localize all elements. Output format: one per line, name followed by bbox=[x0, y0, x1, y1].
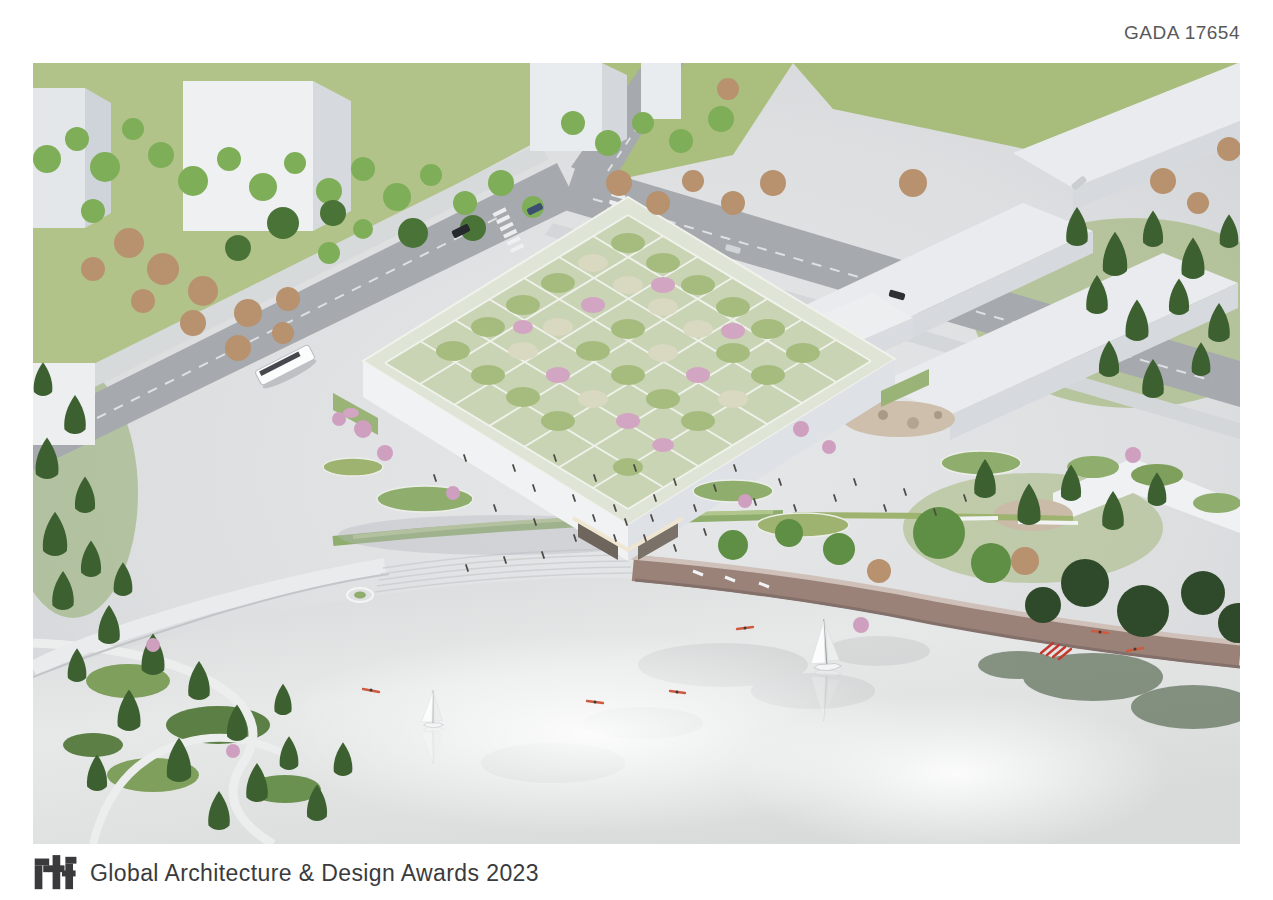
rtf-logo bbox=[33, 852, 79, 894]
award-title: Global Architecture & Design Awards 2023 bbox=[90, 860, 539, 887]
presentation-page: GADA 17654 bbox=[0, 0, 1273, 900]
architectural-rendering bbox=[33, 63, 1240, 844]
submission-id: GADA 17654 bbox=[1124, 22, 1240, 44]
footer-brand: rtf Global Architecture & Design Awards … bbox=[33, 850, 539, 896]
render-illustration bbox=[33, 63, 1240, 844]
